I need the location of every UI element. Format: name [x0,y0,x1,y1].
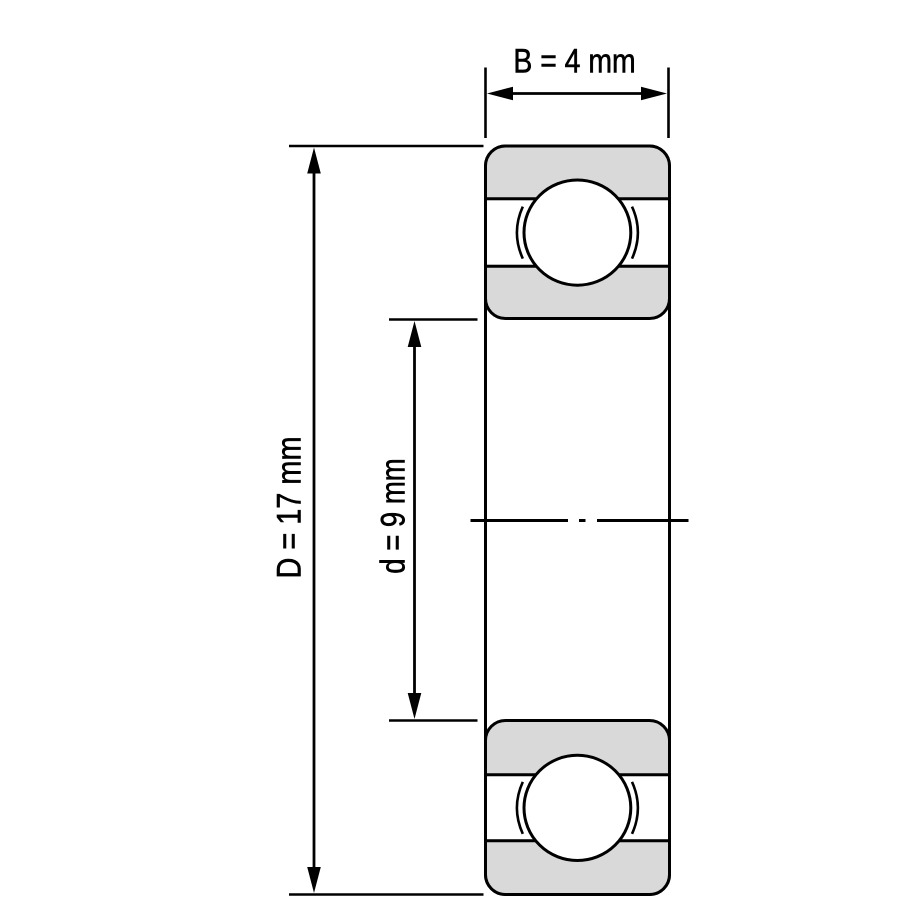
svg-text:d = 9 mm: d = 9 mm [374,458,412,573]
svg-text:B = 4 mm: B = 4 mm [513,42,635,80]
svg-text:D = 17 mm: D = 17 mm [269,436,308,578]
